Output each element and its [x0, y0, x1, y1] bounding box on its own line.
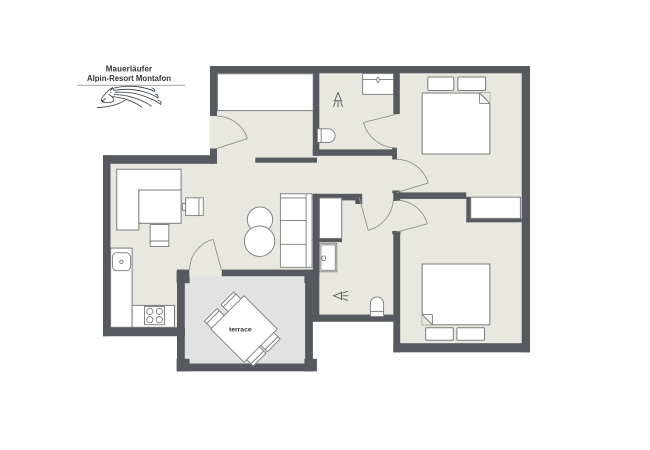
svg-text:terrace: terrace [229, 326, 252, 333]
svg-text:Alpin-Resort Montafon: Alpin-Resort Montafon [87, 74, 171, 83]
svg-text:Mauerläufer: Mauerläufer [106, 65, 152, 74]
